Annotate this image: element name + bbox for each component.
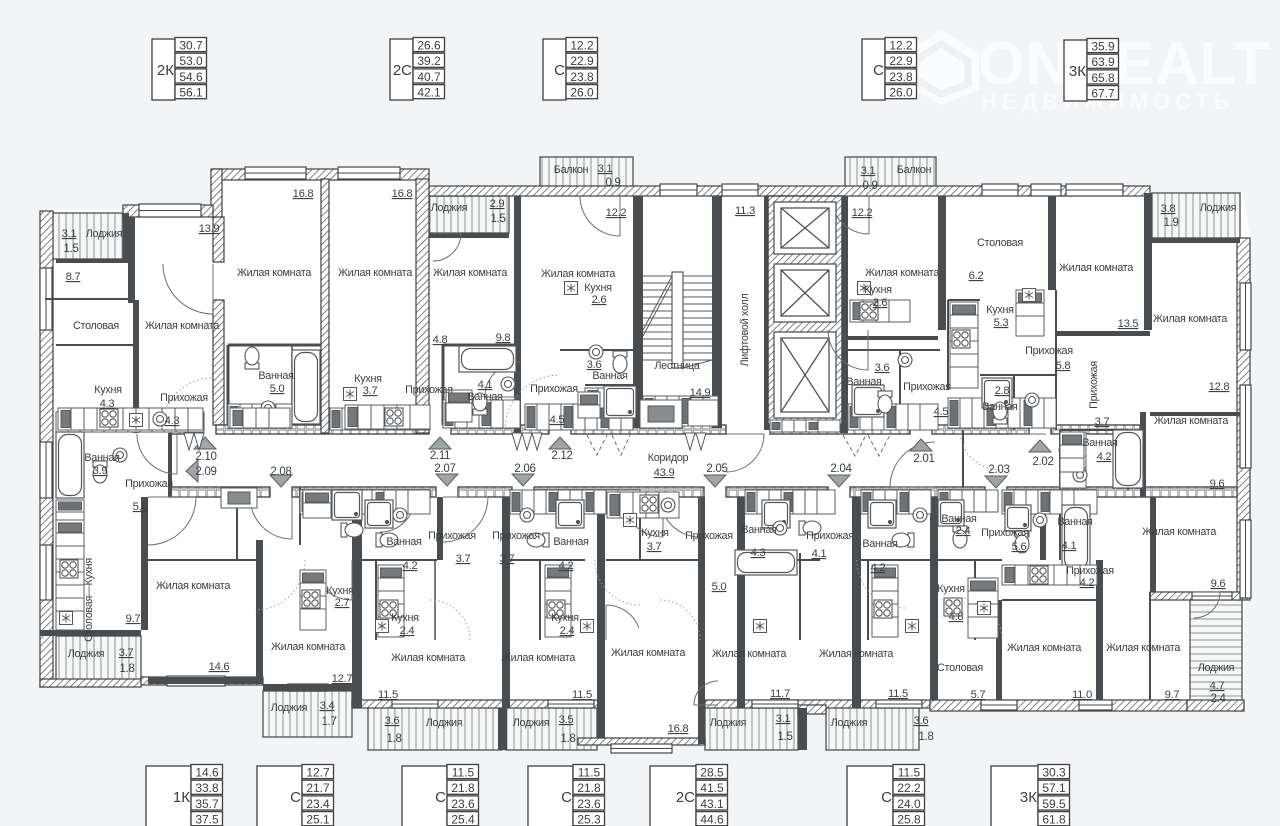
svg-text:3.9: 3.9: [93, 465, 108, 477]
svg-text:3.5: 3.5: [559, 714, 574, 726]
svg-text:3.7: 3.7: [456, 553, 471, 565]
svg-text:Кухня: Кухня: [551, 612, 579, 624]
svg-text:12.2: 12.2: [889, 39, 913, 53]
svg-text:2К: 2К: [157, 62, 174, 79]
svg-text:23.6: 23.6: [577, 797, 601, 811]
svg-text:1.5: 1.5: [490, 213, 505, 225]
svg-text:22.2: 22.2: [897, 781, 921, 795]
svg-text:5.8: 5.8: [1056, 360, 1071, 372]
svg-text:Жилая комната: Жилая комната: [712, 648, 786, 660]
svg-text:Жилая комната: Жилая комната: [1153, 313, 1227, 325]
svg-text:Кухня: Кухня: [864, 284, 892, 296]
svg-text:35.7: 35.7: [195, 797, 219, 811]
svg-text:43.1: 43.1: [700, 797, 724, 811]
svg-text:22.9: 22.9: [570, 54, 594, 68]
svg-text:5.3: 5.3: [994, 317, 1009, 329]
svg-text:21.7: 21.7: [306, 781, 330, 795]
svg-text:Лоджия: Лоджия: [710, 717, 747, 729]
svg-text:3.6: 3.6: [914, 715, 929, 727]
svg-text:Жилая комната: Жилая комната: [1007, 642, 1081, 654]
svg-text:4.3: 4.3: [100, 398, 115, 410]
svg-text:11.5: 11.5: [578, 766, 601, 780]
svg-text:3К: 3К: [1069, 63, 1086, 80]
svg-text:Прихожая: Прихожая: [160, 392, 208, 404]
svg-text:0.9: 0.9: [862, 180, 877, 192]
svg-text:16.8: 16.8: [392, 188, 413, 200]
svg-text:Ванная: Ванная: [846, 376, 882, 388]
svg-text:Ванная: Ванная: [741, 524, 777, 536]
svg-text:4.1: 4.1: [1062, 540, 1077, 552]
svg-text:12.2: 12.2: [606, 207, 627, 219]
svg-text:3.1: 3.1: [62, 228, 77, 240]
svg-text:3.7: 3.7: [1095, 416, 1110, 428]
svg-text:Ванная: Ванная: [862, 538, 898, 550]
svg-text:5.0: 5.0: [712, 581, 727, 593]
svg-text:Жилая комната: Жилая комната: [391, 652, 465, 664]
svg-text:4.2: 4.2: [559, 560, 574, 572]
svg-text:23.8: 23.8: [889, 70, 913, 84]
svg-text:Ванная: Ванная: [1082, 437, 1118, 449]
svg-text:2.6: 2.6: [592, 294, 607, 306]
svg-text:6.2: 6.2: [969, 270, 984, 282]
svg-text:3.6: 3.6: [385, 715, 400, 727]
svg-text:Жилая комната: Жилая комната: [1106, 642, 1180, 654]
svg-text:С: С: [290, 789, 301, 806]
svg-text:С: С: [435, 789, 446, 806]
svg-text:67.7: 67.7: [1091, 87, 1115, 101]
svg-text:Коридор: Коридор: [648, 452, 689, 464]
svg-text:16.8: 16.8: [668, 723, 689, 735]
svg-text:4.2: 4.2: [1080, 577, 1095, 589]
svg-text:2.04: 2.04: [830, 463, 852, 475]
svg-text:11.0: 11.0: [1072, 689, 1092, 701]
svg-text:2.4: 2.4: [956, 525, 971, 537]
svg-text:Прихожая: Прихожая: [981, 527, 1029, 539]
svg-text:С: С: [881, 789, 892, 806]
svg-text:4.8: 4.8: [433, 334, 448, 346]
svg-text:Прихожая: Прихожая: [1025, 345, 1073, 357]
svg-text:14.9: 14.9: [690, 387, 711, 399]
svg-text:59.5: 59.5: [1042, 797, 1066, 811]
svg-text:Прихожая: Прихожая: [405, 384, 453, 396]
svg-text:3.7: 3.7: [119, 647, 134, 659]
svg-text:3К: 3К: [1020, 789, 1037, 806]
svg-text:16.8: 16.8: [293, 188, 314, 200]
svg-text:Столовая: Столовая: [73, 320, 119, 332]
svg-text:26.6: 26.6: [417, 39, 441, 53]
svg-text:Жилая комната: Жилая комната: [271, 641, 345, 653]
svg-text:Лоджия: Лоджия: [513, 717, 550, 729]
svg-text:12.2: 12.2: [570, 39, 594, 53]
svg-text:2.4: 2.4: [400, 625, 415, 637]
svg-text:11.5: 11.5: [452, 766, 475, 780]
svg-text:4.5: 4.5: [550, 414, 565, 426]
svg-text:Лоджия: Лоджия: [86, 228, 123, 240]
svg-text:Лоджия: Лоджия: [1200, 202, 1237, 214]
svg-text:2С: 2С: [393, 62, 412, 79]
svg-text:37.5: 37.5: [195, 813, 219, 826]
svg-text:Прихожая: Прихожая: [428, 530, 476, 542]
svg-text:Ванная: Ванная: [467, 391, 503, 403]
svg-text:4.1: 4.1: [478, 379, 493, 391]
svg-text:2.4: 2.4: [1210, 693, 1226, 705]
svg-text:Ванная: Ванная: [386, 536, 422, 548]
svg-text:Столовая: Столовая: [977, 237, 1023, 249]
svg-text:9.7: 9.7: [1165, 689, 1180, 701]
svg-text:28.5: 28.5: [700, 766, 724, 780]
svg-text:23.8: 23.8: [570, 70, 594, 84]
svg-text:5.7: 5.7: [971, 689, 986, 701]
svg-text:Прихожая: Прихожая: [685, 530, 733, 542]
svg-text:11.7: 11.7: [770, 688, 790, 700]
svg-text:22.9: 22.9: [889, 54, 913, 68]
svg-text:Прихожая: Прихожая: [125, 478, 173, 490]
svg-text:11.5: 11.5: [572, 689, 592, 701]
svg-text:41.5: 41.5: [700, 781, 724, 795]
svg-text:53.0: 53.0: [179, 54, 203, 68]
svg-text:25.1: 25.1: [306, 813, 330, 826]
svg-text:25.3: 25.3: [577, 813, 601, 826]
svg-text:12.8: 12.8: [1209, 381, 1230, 393]
svg-text:2.4: 2.4: [560, 625, 575, 637]
svg-text:3.7: 3.7: [500, 553, 515, 565]
svg-text:2.01: 2.01: [913, 453, 934, 465]
svg-text:С: С: [561, 789, 572, 806]
svg-text:Жилая комната: Жилая комната: [541, 268, 615, 280]
svg-text:2С: 2С: [676, 789, 695, 806]
svg-text:24.0: 24.0: [897, 797, 921, 811]
svg-text:56.1: 56.1: [179, 86, 203, 100]
svg-text:Прихожая: Прихожая: [1088, 361, 1100, 409]
svg-text:Ванная: Ванная: [553, 536, 589, 548]
svg-text:Прихожая: Прихожая: [492, 530, 540, 542]
svg-text:4.5: 4.5: [934, 406, 949, 418]
svg-text:2.6: 2.6: [873, 297, 888, 309]
svg-text:2.03: 2.03: [988, 464, 1009, 476]
svg-text:4.3: 4.3: [165, 415, 180, 427]
svg-text:Жилая комната: Жилая комната: [501, 652, 575, 664]
svg-text:4.3: 4.3: [751, 547, 766, 559]
svg-text:3.8: 3.8: [1161, 203, 1176, 215]
svg-text:Кухня: Кухня: [391, 612, 419, 624]
svg-text:1.8: 1.8: [918, 731, 933, 743]
svg-text:1.5: 1.5: [63, 243, 78, 255]
svg-text:Кухня: Кухня: [584, 282, 612, 294]
svg-text:Лоджия: Лоджия: [1198, 662, 1235, 674]
svg-text:14.6: 14.6: [195, 766, 219, 780]
svg-text:43.9: 43.9: [654, 467, 675, 479]
svg-text:5.6: 5.6: [1012, 541, 1027, 553]
svg-text:0.9: 0.9: [605, 177, 620, 189]
svg-text:4.8: 4.8: [949, 611, 964, 623]
svg-text:2.12: 2.12: [551, 450, 572, 462]
svg-text:Ванная: Ванная: [592, 370, 628, 382]
svg-text:3.6: 3.6: [587, 359, 602, 371]
svg-text:Столовая: Столовая: [937, 662, 983, 674]
svg-text:Жилая комната: Жилая комната: [237, 267, 311, 279]
svg-text:Ванная: Ванная: [1057, 516, 1093, 528]
svg-text:61.8: 61.8: [1042, 813, 1066, 826]
svg-text:63.9: 63.9: [1091, 55, 1115, 69]
svg-text:Лоджия: Лоджия: [431, 202, 468, 214]
svg-text:30.7: 30.7: [179, 39, 203, 53]
svg-text:21.8: 21.8: [577, 781, 601, 795]
svg-text:40.7: 40.7: [417, 70, 441, 84]
svg-text:Лоджия: Лоджия: [426, 717, 463, 729]
svg-text:2.09: 2.09: [195, 466, 216, 478]
svg-text:Ванная: Ванная: [258, 370, 294, 382]
svg-text:Кухня: Кухня: [641, 527, 669, 539]
svg-text:35.9: 35.9: [1091, 40, 1115, 54]
svg-text:3.7: 3.7: [363, 385, 378, 397]
svg-text:2.7: 2.7: [335, 597, 350, 609]
svg-text:65.8: 65.8: [1091, 71, 1115, 85]
svg-text:12.2: 12.2: [852, 207, 873, 219]
svg-text:Лоджия: Лоджия: [68, 648, 105, 660]
svg-text:11.5: 11.5: [898, 766, 921, 780]
svg-text:Прихожая: Прихожая: [806, 530, 854, 542]
svg-text:13.5: 13.5: [1118, 318, 1139, 330]
svg-text:2.11: 2.11: [430, 450, 450, 462]
svg-text:4.1: 4.1: [812, 548, 827, 560]
svg-text:4.2: 4.2: [1097, 451, 1112, 463]
svg-text:2.08: 2.08: [270, 466, 291, 478]
svg-text:30.3: 30.3: [1042, 766, 1066, 780]
svg-text:Прихожая: Прихожая: [530, 383, 578, 395]
svg-text:2.8: 2.8: [995, 385, 1010, 397]
svg-text:3.1: 3.1: [776, 713, 791, 725]
svg-text:Балкон: Балкон: [554, 164, 589, 176]
svg-text:Жилая комната: Жилая комната: [1154, 415, 1228, 427]
svg-text:5.6: 5.6: [133, 501, 148, 513]
svg-text:Кухня: Кухня: [354, 373, 382, 385]
svg-text:23.6: 23.6: [451, 797, 475, 811]
svg-text:14.6: 14.6: [209, 661, 230, 673]
svg-text:2.02: 2.02: [1032, 456, 1053, 468]
svg-text:42.1: 42.1: [417, 86, 441, 100]
svg-text:11.3: 11.3: [735, 205, 755, 217]
svg-text:3.1: 3.1: [598, 163, 613, 175]
svg-text:12.7: 12.7: [332, 673, 353, 685]
svg-text:12.7: 12.7: [306, 766, 330, 780]
svg-text:3.7: 3.7: [647, 541, 662, 553]
svg-text:2.10: 2.10: [195, 451, 216, 463]
svg-text:Ванная: Ванная: [84, 452, 120, 464]
svg-text:26.0: 26.0: [570, 86, 594, 100]
svg-text:11.5: 11.5: [378, 689, 398, 701]
svg-text:4.7: 4.7: [1210, 680, 1225, 692]
svg-text:33.8: 33.8: [195, 781, 219, 795]
svg-text:2.05: 2.05: [706, 463, 727, 475]
svg-text:Жилая комната: Жилая комната: [433, 267, 507, 279]
svg-text:Балкон: Балкон: [897, 164, 932, 176]
svg-text:Жилая комната: Жилая комната: [865, 267, 939, 279]
svg-text:1.5: 1.5: [777, 731, 792, 743]
svg-text:25.4: 25.4: [451, 813, 475, 826]
svg-text:Лоджия: Лоджия: [271, 702, 308, 714]
svg-text:Жилая комната: Жилая комната: [819, 648, 893, 660]
svg-text:Кухня: Кухня: [326, 585, 354, 597]
svg-text:26.0: 26.0: [889, 86, 913, 100]
svg-text:1.9: 1.9: [1163, 217, 1178, 229]
svg-text:9.6: 9.6: [1211, 578, 1226, 590]
svg-text:21.8: 21.8: [451, 781, 475, 795]
svg-text:Кухня: Кухня: [937, 583, 965, 595]
svg-text:1К: 1К: [173, 789, 190, 806]
svg-text:39.2: 39.2: [417, 54, 441, 68]
svg-text:Прихожая: Прихожая: [903, 381, 951, 393]
svg-text:5.0: 5.0: [270, 383, 285, 395]
svg-text:1.8: 1.8: [119, 663, 134, 675]
svg-text:Кухня: Кухня: [94, 384, 122, 396]
svg-text:57.1: 57.1: [1042, 781, 1066, 795]
svg-text:4.2: 4.2: [871, 562, 886, 574]
svg-text:1.8: 1.8: [386, 733, 401, 745]
svg-text:С: С: [554, 62, 565, 79]
svg-text:8.7: 8.7: [66, 271, 81, 283]
svg-text:9.6: 9.6: [1210, 478, 1225, 490]
svg-text:Лестница: Лестница: [654, 360, 700, 372]
svg-text:Кухня: Кухня: [986, 304, 1014, 316]
svg-text:Жилая комната: Жилая комната: [156, 580, 230, 592]
svg-text:4.2: 4.2: [403, 560, 418, 572]
svg-text:2.06: 2.06: [514, 463, 535, 475]
svg-text:ONREALT: ONREALT: [978, 30, 1271, 97]
svg-text:9.8: 9.8: [496, 332, 511, 344]
svg-text:Лифтовой холл: Лифтовой холл: [739, 294, 751, 367]
svg-text:Жилая комната: Жилая комната: [1059, 262, 1133, 274]
svg-text:Жилая комната: Жилая комната: [145, 320, 219, 332]
svg-text:11.5: 11.5: [888, 688, 908, 700]
svg-text:44.6: 44.6: [700, 813, 724, 826]
svg-text:3.1: 3.1: [861, 165, 876, 177]
svg-text:54.6: 54.6: [179, 70, 203, 84]
svg-text:2.07: 2.07: [434, 463, 455, 475]
svg-text:3.6: 3.6: [875, 362, 890, 374]
svg-text:1.8: 1.8: [560, 733, 575, 745]
svg-text:Прихожая: Прихожая: [1066, 565, 1114, 577]
svg-text:3.4: 3.4: [320, 700, 335, 712]
svg-text:Жилая комната: Жилая комната: [338, 267, 412, 279]
svg-text:С: С: [873, 62, 884, 79]
svg-text:Ванная: Ванная: [941, 513, 977, 525]
svg-text:9.7: 9.7: [126, 613, 141, 625]
svg-text:Ванная: Ванная: [982, 401, 1018, 413]
svg-text:13.9: 13.9: [199, 223, 220, 235]
svg-text:Столовая—Кухня: Столовая—Кухня: [83, 558, 95, 642]
svg-text:2.9: 2.9: [490, 198, 505, 210]
svg-text:1.7: 1.7: [321, 716, 336, 728]
svg-text:Лоджия: Лоджия: [831, 717, 868, 729]
svg-text:Жилая комната: Жилая комната: [1142, 526, 1216, 538]
svg-text:Жилая комната: Жилая комната: [611, 647, 685, 659]
svg-text:25.8: 25.8: [897, 813, 921, 826]
svg-text:23.4: 23.4: [306, 797, 330, 811]
